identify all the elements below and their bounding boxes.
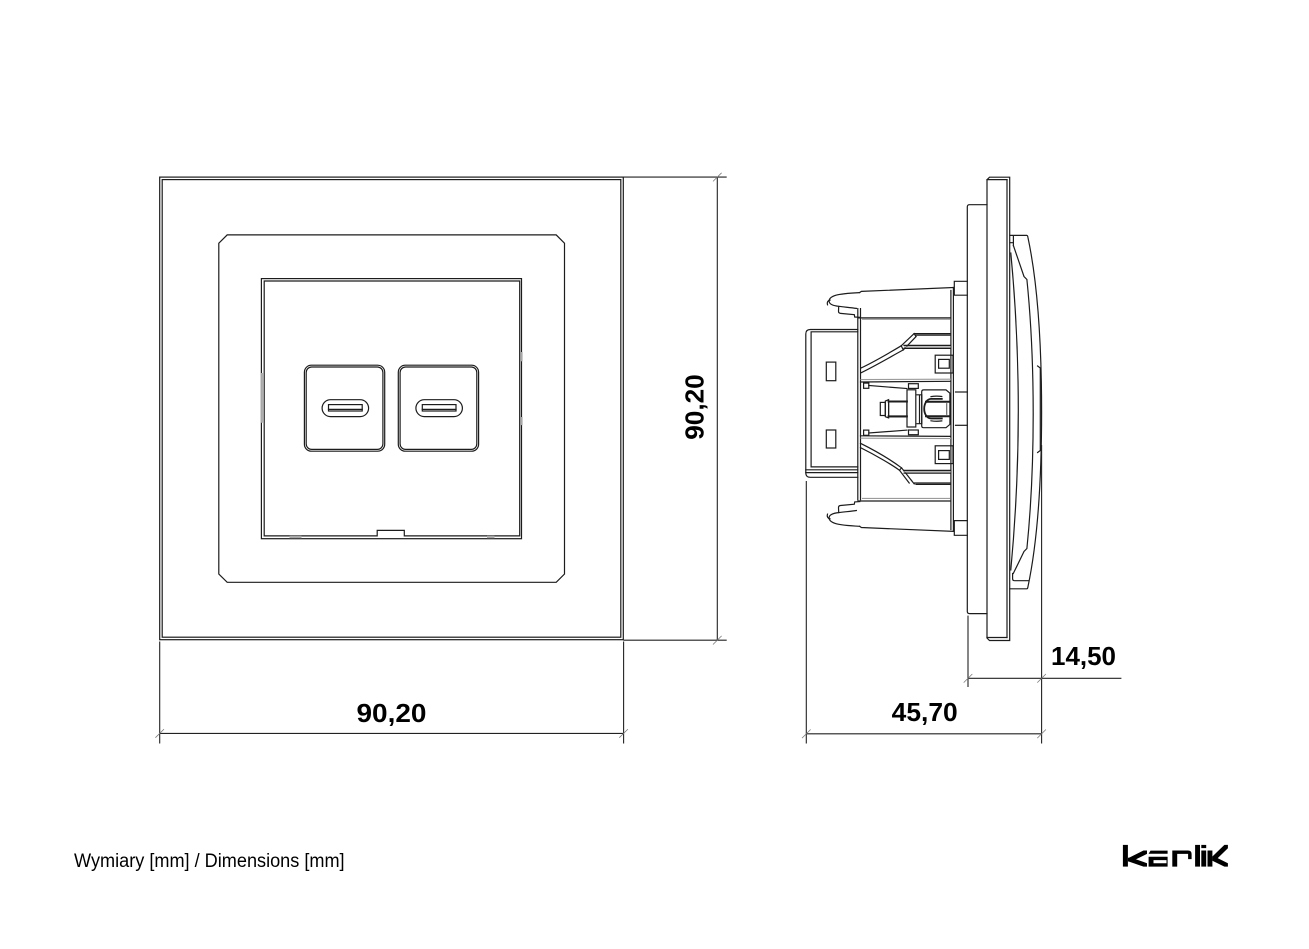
svg-text:45,70: 45,70	[892, 697, 958, 727]
svg-text:90,20: 90,20	[357, 698, 427, 728]
svg-text:14,50: 14,50	[1051, 641, 1116, 671]
svg-text:90,20: 90,20	[679, 374, 709, 440]
svg-text:Wymiary [mm] / Dimensions [mm]: Wymiary [mm] / Dimensions [mm]	[74, 851, 345, 872]
